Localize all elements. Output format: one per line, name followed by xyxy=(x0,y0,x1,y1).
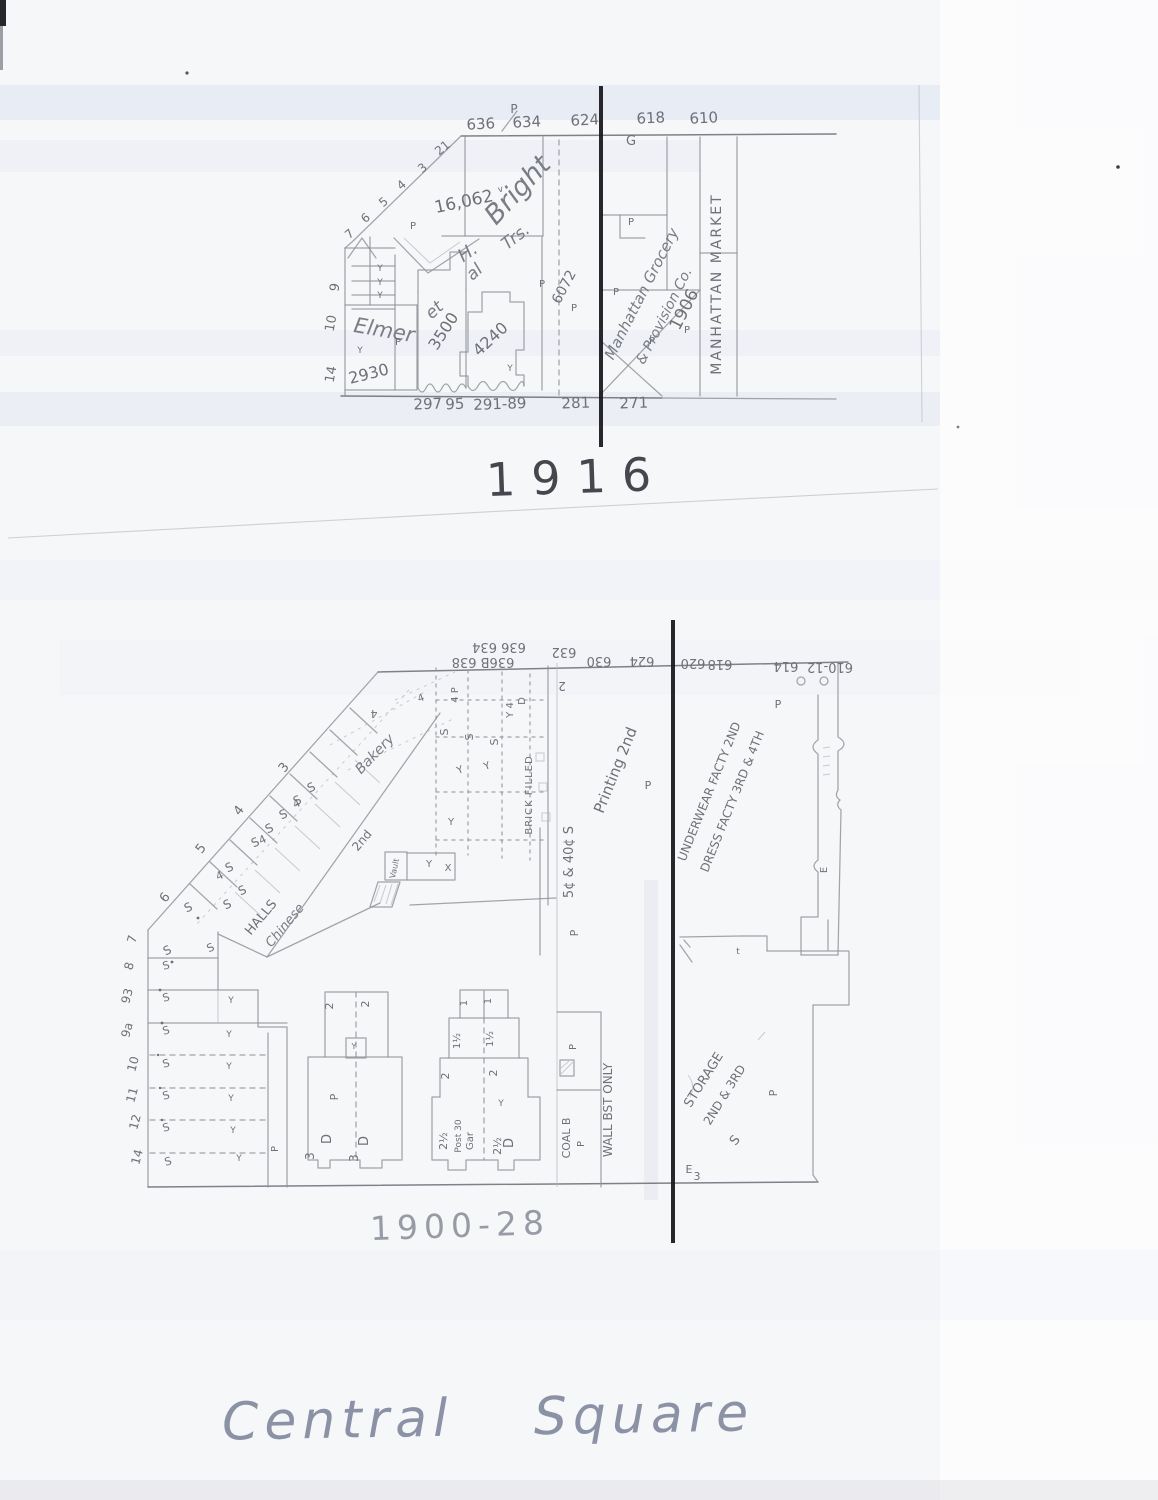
caption-central-square: Central Square xyxy=(222,1383,755,1452)
map-1916-labels: 636634624618610P21345679101416,062vElmer… xyxy=(323,102,725,414)
map-label: BRICK FILLED xyxy=(524,755,535,834)
map-label: 4 P xyxy=(450,687,461,703)
map-label: P xyxy=(628,217,634,228)
pencil-stroke xyxy=(159,1087,161,1089)
map-label: 10 xyxy=(124,1055,141,1073)
pencil-stroke xyxy=(820,677,828,685)
map-label: WALL BST ONLY xyxy=(601,1062,615,1157)
map-label: S xyxy=(438,728,451,735)
pencil-stroke xyxy=(741,936,767,951)
pencil-stroke xyxy=(410,898,556,905)
map-label: 5 xyxy=(376,194,391,210)
map-label: P xyxy=(395,337,401,348)
map-label: Elmer xyxy=(352,313,418,347)
pencil-stroke xyxy=(404,238,460,263)
map-label: 14 xyxy=(128,1148,145,1166)
pencil-stroke xyxy=(468,382,524,391)
map-label: P xyxy=(510,102,517,116)
scanned-page: 636634624618610P21345679101416,062vElmer… xyxy=(0,0,1158,1500)
map-label: Y xyxy=(356,346,363,356)
map-label: 93 xyxy=(118,987,135,1005)
pencil-stroke xyxy=(461,134,836,136)
map-label: MANHATTAN MARKET xyxy=(709,193,725,374)
map-label: 618 xyxy=(636,108,666,127)
map-label: 1 xyxy=(459,1000,470,1006)
pencil-stroke xyxy=(148,672,378,930)
map-label: S xyxy=(161,942,174,958)
map-label: 14 xyxy=(323,365,341,384)
map-label: 10 xyxy=(323,314,341,333)
map-label: Vault xyxy=(388,858,401,880)
map-label: Y xyxy=(376,291,383,301)
map-label: 618 xyxy=(708,656,733,671)
map-label: E xyxy=(819,867,830,873)
map-label: D xyxy=(517,697,528,705)
map-label: Y xyxy=(225,1030,232,1040)
map-label: Y xyxy=(351,1042,357,1051)
pencil-stroke xyxy=(370,882,400,907)
map-label: 2½ xyxy=(437,1132,450,1150)
map-label: 95 xyxy=(445,395,465,414)
map-label: COAL B xyxy=(560,1118,573,1159)
map-label: 4 xyxy=(214,868,226,883)
map-label: 291-89 xyxy=(473,394,527,414)
map-label: P xyxy=(775,698,782,711)
map-label: 271 xyxy=(619,394,648,413)
map-label: 12 xyxy=(126,1113,143,1131)
map-label: 630 xyxy=(587,653,612,668)
map-label: S xyxy=(205,940,217,955)
map-label: 2 xyxy=(487,1070,500,1077)
pencil-stroke xyxy=(680,940,692,962)
map-label: Y xyxy=(227,1094,234,1104)
map-label: S xyxy=(161,1056,171,1070)
map-label: 3 xyxy=(303,1152,317,1160)
map-label: Y xyxy=(376,278,383,288)
pencil-stroke xyxy=(836,662,844,955)
map-label: S xyxy=(488,738,501,745)
map-label: P xyxy=(270,1146,281,1152)
map-label: 8 xyxy=(121,960,137,971)
map-label: S xyxy=(161,1023,171,1037)
map-label: P xyxy=(328,1093,341,1100)
pencil-stroke xyxy=(813,952,849,1182)
map-label: 1½ xyxy=(451,1033,463,1049)
map-label: Y xyxy=(447,817,455,828)
map-label: P xyxy=(576,1141,587,1147)
map-1900-28-labels: 636 634632636B 638630624620618614610-122… xyxy=(118,639,853,1183)
pencil-stroke xyxy=(308,1057,402,1168)
map-label: S xyxy=(277,806,290,822)
map-label: 3 xyxy=(694,1170,701,1183)
map-label: S xyxy=(223,859,236,875)
map-label: D xyxy=(502,1138,517,1148)
pencil-stroke xyxy=(418,384,466,392)
map-label: Y xyxy=(425,859,433,870)
map-label: Bakery xyxy=(352,731,398,778)
map-label: 4 xyxy=(371,707,378,720)
map-label: 636 xyxy=(466,114,496,133)
map-label: G xyxy=(626,134,636,149)
map-label: 3 xyxy=(347,1154,361,1162)
map-label: Y xyxy=(235,1154,242,1164)
map-label: Y xyxy=(227,996,234,1006)
map-label: S xyxy=(463,733,476,740)
map-label: 2 xyxy=(359,1001,372,1008)
map-label: S xyxy=(236,882,249,898)
pencil-stroke xyxy=(1116,165,1120,169)
pencil-stroke xyxy=(542,813,550,821)
map-label: 7 xyxy=(124,933,140,944)
map-label: 624 xyxy=(630,653,655,668)
map-label: 5¢ & 40¢ S xyxy=(562,826,577,898)
map-label: P xyxy=(410,221,416,232)
pencil-stroke xyxy=(919,85,922,422)
map-label: S xyxy=(163,1154,173,1168)
pencil-stroke xyxy=(352,266,395,309)
pencil-stroke xyxy=(561,1061,573,1074)
map-label: 297 xyxy=(413,395,442,414)
map-label: Y xyxy=(481,760,492,773)
map-label: 4 xyxy=(394,177,409,193)
pencil-stroke xyxy=(157,1054,159,1056)
pencil-stroke xyxy=(557,1012,601,1187)
map-label: 21 xyxy=(432,138,453,159)
map-label: S xyxy=(161,1120,171,1134)
map-label: Printing 2nd xyxy=(590,725,641,816)
map-label: 2930 xyxy=(347,360,391,388)
map-label: S xyxy=(161,990,171,1004)
map-label: Gar xyxy=(465,1131,476,1150)
hand-drawn-maps: 636634624618610P21345679101416,062vElmer… xyxy=(0,0,1158,1500)
map-label: X xyxy=(445,863,452,874)
map-label: P xyxy=(767,1089,780,1096)
pencil-stroke xyxy=(823,747,830,775)
caption-year-1916: 1916 xyxy=(485,447,668,507)
map-label: H. xyxy=(454,238,482,266)
map-label: Y xyxy=(376,264,383,274)
pencil-stroke xyxy=(797,677,805,685)
map-label: 614 xyxy=(774,658,799,673)
map-label: 620 xyxy=(681,655,706,670)
map-label: 636B 638 xyxy=(452,654,515,669)
map-label: 610 xyxy=(689,108,719,127)
pencil-stroke xyxy=(196,690,409,925)
map-label: S xyxy=(305,779,318,795)
map-label: P xyxy=(568,1044,579,1050)
map-label: 4 xyxy=(416,692,426,705)
map-label: 4 xyxy=(231,803,248,819)
map-label: 281 xyxy=(561,394,590,413)
map-label: Y xyxy=(225,1062,232,1072)
pencil-stroke xyxy=(662,398,836,399)
map-label: S xyxy=(182,899,195,915)
map-label: 11 xyxy=(123,1086,140,1104)
map-label: 2 xyxy=(558,679,566,693)
map-label: 3 xyxy=(276,760,293,776)
map-label: 1 xyxy=(483,998,494,1004)
map-label: P xyxy=(539,279,545,290)
map-label: E xyxy=(686,1163,693,1176)
map-label: S xyxy=(727,1133,744,1149)
map-label: S xyxy=(263,820,276,836)
map-label: 632 xyxy=(552,644,577,659)
map-label: 2 xyxy=(323,1003,336,1010)
pencil-stroke xyxy=(680,936,741,937)
pencil-stroke xyxy=(185,71,188,74)
map-label: 2 xyxy=(439,1073,452,1080)
map-label: 624 xyxy=(570,110,600,129)
map-label: 6072 xyxy=(549,268,580,307)
map-label: P xyxy=(613,287,619,298)
map-label: 4240 xyxy=(469,318,512,360)
pencil-stroke xyxy=(536,753,544,761)
map-label: Y xyxy=(497,1099,504,1109)
map-label: Post 30 xyxy=(454,1119,464,1152)
map-label: 1½ xyxy=(484,1031,496,1047)
map-label: S xyxy=(161,958,171,972)
map-label: S xyxy=(161,1088,171,1102)
map-label: 5 xyxy=(193,841,210,857)
caption-year-1900-28: 1900-28 xyxy=(369,1203,550,1248)
map-label: 610-12 xyxy=(807,659,853,674)
pencil-stroke xyxy=(767,920,849,951)
map-label: Y 4 xyxy=(505,702,516,719)
pencil-stroke xyxy=(8,489,938,538)
map-label: S xyxy=(221,896,234,912)
map-label: t xyxy=(736,947,740,957)
map-label: 636 634 xyxy=(472,639,526,654)
pencil-stroke xyxy=(197,917,200,920)
map-label: 2nd xyxy=(349,827,374,854)
map-label: P xyxy=(571,303,577,314)
pencil-stroke xyxy=(159,989,162,992)
pencil-stroke xyxy=(957,426,960,429)
map-label: P xyxy=(568,929,581,936)
pencil-stroke xyxy=(539,783,547,791)
map-label: D xyxy=(320,1134,335,1144)
pencil-stroke xyxy=(374,884,398,905)
map-label: 9 xyxy=(327,282,343,293)
map-label: Y xyxy=(454,764,465,777)
map-label: Y xyxy=(229,1126,236,1136)
map-label: P xyxy=(645,779,652,792)
pencil-stroke xyxy=(148,1182,818,1187)
pencil-stroke xyxy=(171,961,174,964)
map-label: D xyxy=(357,1136,372,1146)
pencil-stroke xyxy=(801,695,818,955)
map-label: Y xyxy=(506,364,513,374)
map-label: 9a xyxy=(118,1021,135,1039)
